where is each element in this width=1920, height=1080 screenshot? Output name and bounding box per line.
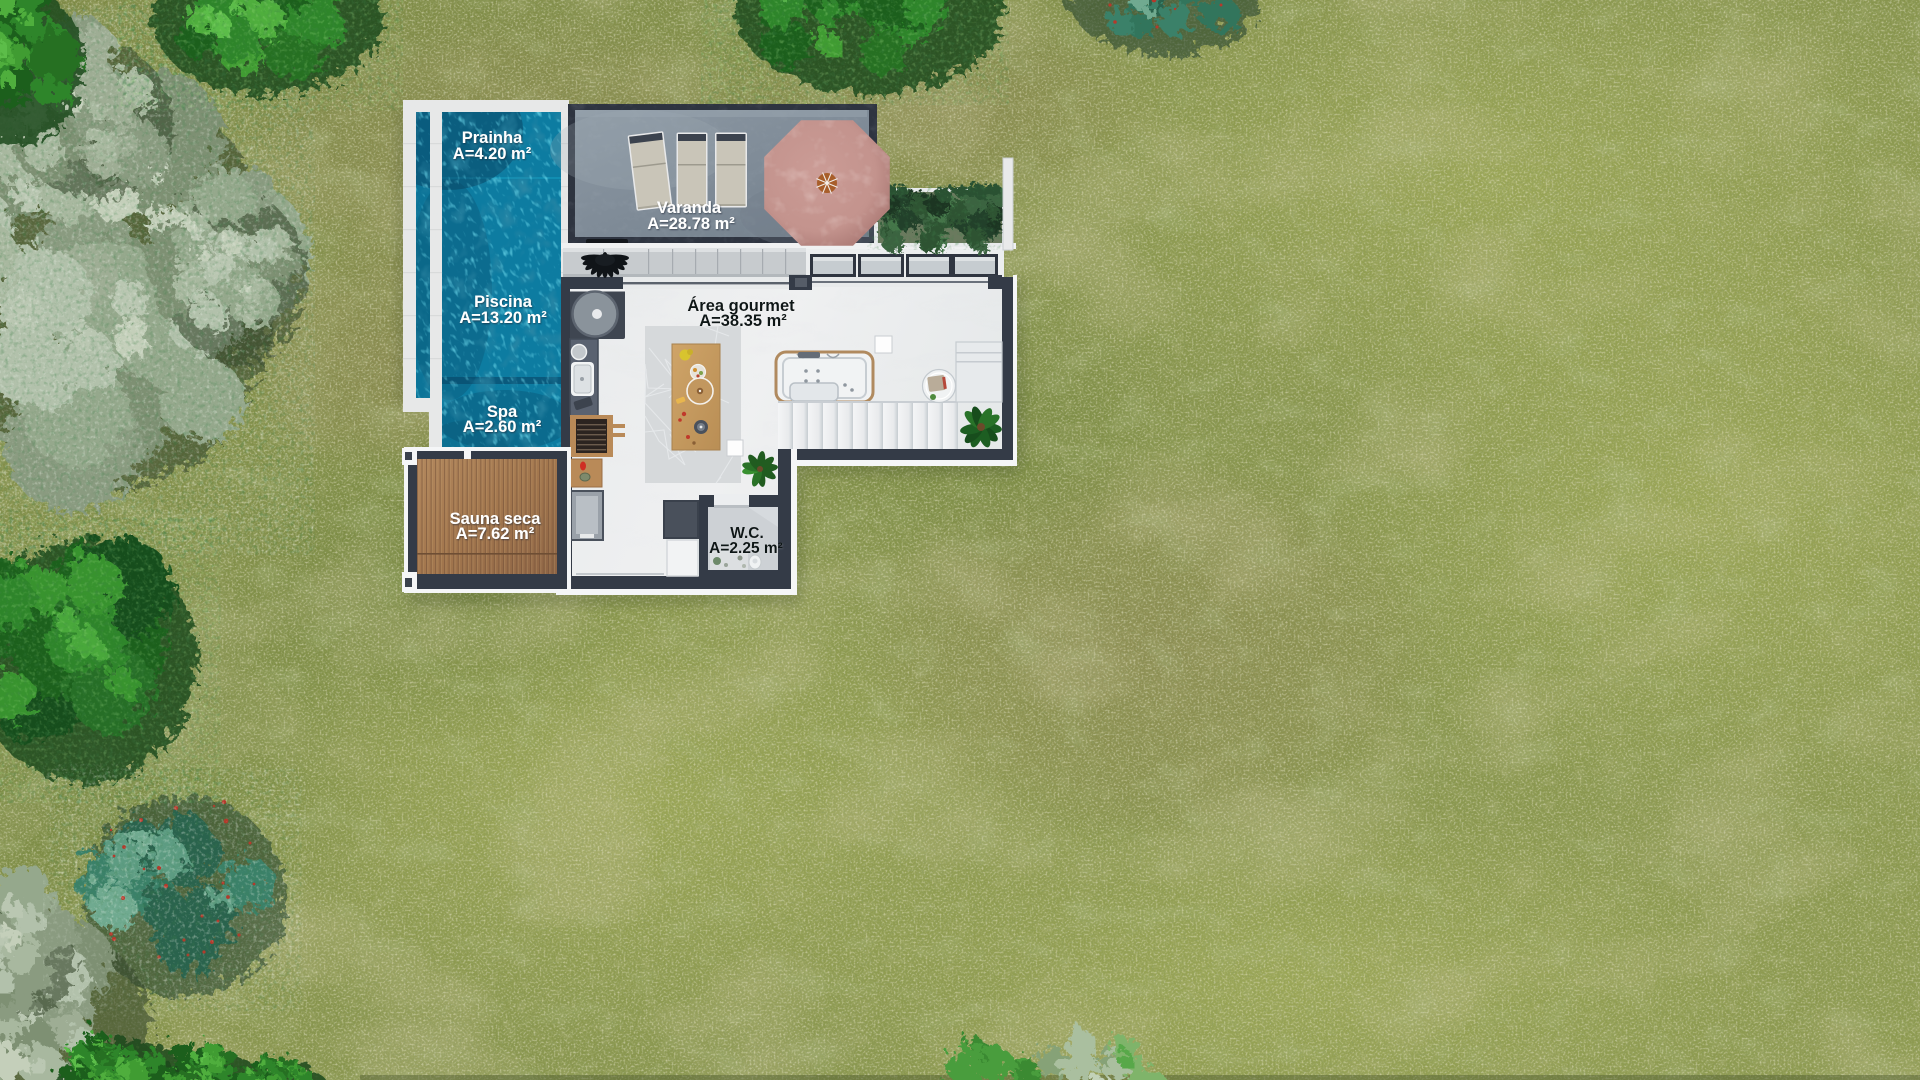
svg-text:A=13.20 m²: A=13.20 m² (459, 309, 547, 327)
svg-text:A=4.20 m²: A=4.20 m² (453, 145, 532, 163)
svg-text:A=7.62 m²: A=7.62 m² (456, 525, 535, 543)
svg-text:A=2.60 m²: A=2.60 m² (463, 418, 542, 436)
svg-text:A=28.78 m²: A=28.78 m² (647, 215, 735, 233)
svg-text:A=2.25 m²: A=2.25 m² (709, 540, 783, 557)
svg-text:A=38.35 m²: A=38.35 m² (699, 312, 787, 330)
